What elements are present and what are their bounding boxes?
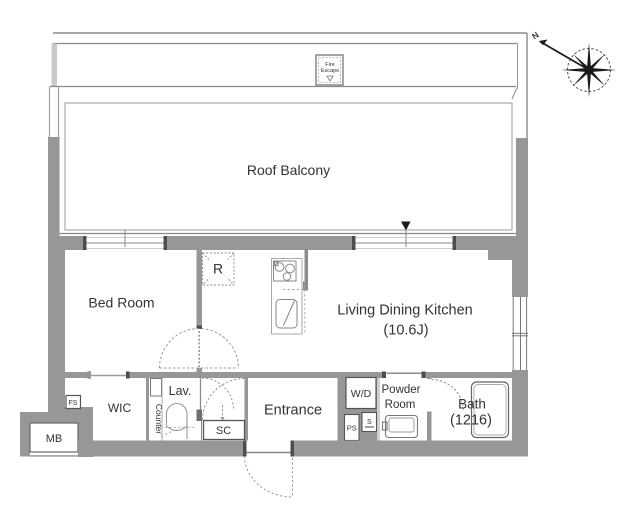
svg-text:Roof Balcony: Roof Balcony xyxy=(247,162,330,178)
svg-text:SC: SC xyxy=(216,425,231,437)
svg-text:PS: PS xyxy=(347,424,357,433)
svg-text:Escape: Escape xyxy=(321,68,339,74)
svg-text:Bath: Bath xyxy=(458,397,486,412)
svg-text:W/D: W/D xyxy=(351,388,372,400)
svg-text:(10.6J): (10.6J) xyxy=(383,323,428,339)
svg-text:FS: FS xyxy=(69,400,78,407)
svg-text:S: S xyxy=(367,419,372,426)
svg-text:Bed Room: Bed Room xyxy=(88,295,154,311)
svg-text:Room: Room xyxy=(385,399,416,411)
svg-text:Living Dining Kitchen: Living Dining Kitchen xyxy=(337,303,472,319)
svg-text:MB: MB xyxy=(46,433,63,445)
svg-text:Powder: Powder xyxy=(382,384,421,396)
svg-text:WIC: WIC xyxy=(108,401,132,415)
svg-text:Counter: Counter xyxy=(154,404,164,434)
svg-text:Entrance: Entrance xyxy=(264,403,322,419)
svg-text:R: R xyxy=(213,261,223,277)
svg-text:Lav.: Lav. xyxy=(169,384,192,398)
svg-text:(1216): (1216) xyxy=(450,413,492,429)
